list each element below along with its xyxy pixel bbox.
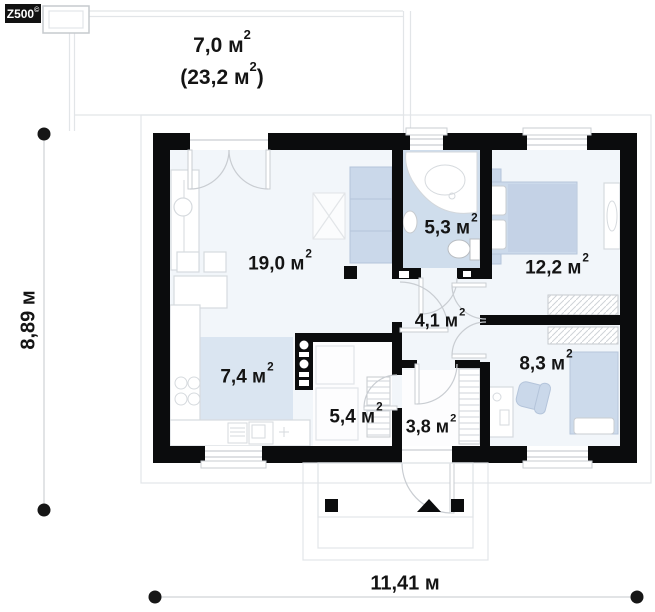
porch-post (451, 499, 464, 512)
wall-bathroom-right (480, 150, 492, 268)
pergola-post (43, 6, 89, 33)
chair (177, 252, 199, 272)
kitchen-counter-bottom (170, 420, 310, 446)
wall-bathroom-left (392, 150, 403, 268)
terrace-area-line2: (23,2 м2) (180, 59, 263, 91)
room-label-utility: 5,4 м2 (329, 405, 382, 428)
copyright-mark: © (34, 7, 39, 14)
room-label-hall: 4,1 м2 (415, 311, 466, 332)
tv-icon (174, 198, 192, 216)
floor-plan-drawing (0, 0, 655, 612)
room-label-bedroom: 12,2 м2 (525, 256, 589, 279)
floor-plan-page: Z500© 7,0 м2 (23,2 м2) 19,0 м2 7,4 м2 5,… (0, 0, 655, 612)
terrace-area-label: 7,0 м2 (23,2 м2) (180, 27, 263, 91)
brand-logo-text: Z500 (7, 7, 34, 21)
porch-post (325, 499, 338, 512)
dimension-width: 11,41 м (370, 573, 439, 596)
room-label-kitchen: 7,4 м2 (220, 365, 273, 388)
dimension-height: 8,89 м (18, 290, 41, 349)
wall-bedroom-divider (480, 315, 620, 325)
pillow (574, 418, 614, 434)
washbasin (403, 211, 417, 233)
window-kitchen (201, 446, 266, 468)
entry-furniture (459, 368, 480, 444)
room-label-office: 8,3 м2 (519, 352, 572, 375)
chair (204, 252, 226, 272)
dining-table (174, 276, 227, 308)
radiator (604, 183, 620, 249)
window-bathroom (406, 128, 447, 150)
window-office (523, 446, 592, 468)
room-label-living: 19,0 м2 (248, 252, 312, 275)
toilet-tank (470, 239, 480, 260)
room-label-bathroom: 5,3 м2 (424, 216, 477, 239)
window-bedroom (523, 128, 591, 150)
entrance-arrow-icon (417, 499, 441, 512)
tv-point (344, 266, 357, 279)
sofa (350, 167, 392, 263)
porch (303, 463, 488, 560)
room-label-entry: 3,8 м2 (406, 417, 457, 438)
toilet (448, 240, 470, 258)
brand-logo: Z500© (5, 4, 41, 23)
terrace-area-line1: 7,0 м2 (180, 27, 263, 59)
